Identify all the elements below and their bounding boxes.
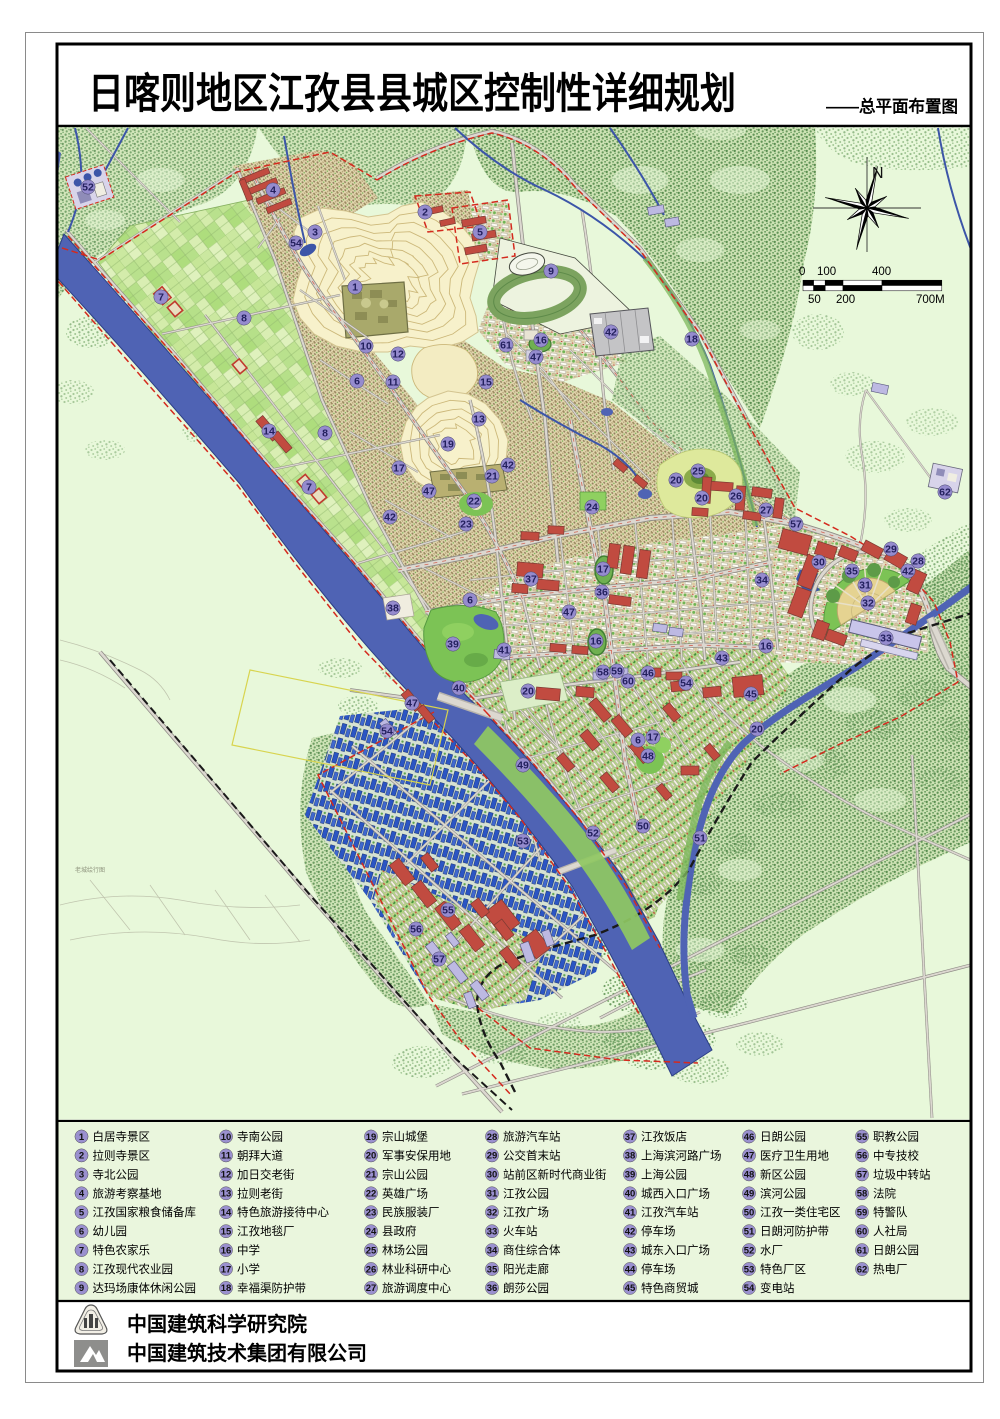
svg-text:19: 19: [366, 1132, 377, 1143]
svg-text:23: 23: [366, 1208, 377, 1219]
svg-text:10: 10: [221, 1132, 232, 1143]
svg-text:48: 48: [642, 751, 654, 763]
svg-text:4: 4: [270, 185, 276, 197]
svg-text:江孜一类住宅区: 江孜一类住宅区: [760, 1205, 841, 1219]
svg-text:县政府: 县政府: [382, 1224, 417, 1238]
svg-text:旅游调度中心: 旅游调度中心: [382, 1281, 451, 1295]
svg-text:35: 35: [846, 566, 858, 578]
svg-text:16: 16: [221, 1245, 232, 1256]
svg-text:57: 57: [857, 1170, 868, 1181]
svg-text:53: 53: [517, 836, 529, 848]
svg-text:30: 30: [813, 557, 825, 569]
svg-text:26: 26: [366, 1264, 377, 1275]
svg-text:42: 42: [605, 327, 617, 339]
svg-text:13: 13: [473, 414, 485, 426]
svg-text:46: 46: [642, 668, 654, 680]
svg-text:31: 31: [859, 580, 871, 592]
svg-text:24: 24: [586, 502, 598, 514]
svg-text:39: 39: [625, 1170, 636, 1181]
svg-text:2: 2: [79, 1151, 84, 1162]
svg-text:44: 44: [625, 1264, 636, 1275]
svg-text:700M: 700M: [916, 294, 945, 306]
svg-text:53: 53: [744, 1264, 755, 1275]
svg-text:6: 6: [354, 376, 360, 388]
svg-text:62: 62: [857, 1264, 868, 1275]
svg-text:18: 18: [686, 334, 698, 346]
svg-text:39: 39: [447, 639, 459, 651]
svg-text:20: 20: [696, 493, 708, 505]
svg-text:14: 14: [263, 426, 275, 438]
svg-text:3: 3: [312, 227, 318, 239]
svg-text:8: 8: [322, 428, 328, 440]
svg-text:50: 50: [637, 821, 649, 833]
svg-text:20: 20: [751, 724, 763, 736]
svg-text:老城绘行图: 老城绘行图: [75, 866, 105, 874]
svg-text:25: 25: [692, 466, 704, 478]
svg-text:47: 47: [744, 1151, 755, 1162]
svg-text:特色旅游接待中心: 特色旅游接待中心: [237, 1205, 329, 1219]
svg-text:34: 34: [756, 575, 768, 587]
svg-text:33: 33: [880, 633, 892, 645]
svg-text:6: 6: [467, 595, 473, 607]
svg-text:45: 45: [745, 689, 757, 701]
svg-text:48: 48: [744, 1170, 755, 1181]
svg-text:36: 36: [487, 1283, 498, 1294]
svg-text:垃圾中转站: 垃圾中转站: [873, 1167, 931, 1181]
svg-text:特色厂区: 特色厂区: [760, 1262, 806, 1276]
svg-text:日喀则地区江孜县县城区控制性详细规划: 日喀则地区江孜县县城区控制性详细规划: [88, 70, 736, 117]
svg-text:江孜现代农业园: 江孜现代农业园: [93, 1262, 174, 1276]
svg-text:站前区新时代商业街: 站前区新时代商业街: [503, 1167, 607, 1181]
svg-text:28: 28: [487, 1132, 498, 1143]
svg-text:25: 25: [366, 1245, 377, 1256]
svg-text:43: 43: [625, 1245, 636, 1256]
svg-text:30: 30: [487, 1170, 498, 1181]
svg-text:9: 9: [548, 266, 554, 278]
svg-text:江孜国家粮食储备库: 江孜国家粮食储备库: [93, 1205, 197, 1219]
svg-text:100: 100: [817, 266, 836, 278]
svg-text:47: 47: [563, 607, 575, 619]
svg-text:达玛场康体休闲公园: 达玛场康体休闲公园: [93, 1281, 197, 1295]
svg-text:37: 37: [625, 1132, 636, 1143]
svg-text:47: 47: [530, 352, 542, 364]
svg-text:400: 400: [872, 266, 891, 278]
svg-text:61: 61: [857, 1245, 868, 1256]
svg-text:54: 54: [744, 1283, 755, 1294]
svg-text:江孜公园: 江孜公园: [503, 1186, 549, 1200]
svg-text:40: 40: [625, 1189, 636, 1200]
svg-text:法院: 法院: [873, 1186, 896, 1200]
svg-text:林业科研中心: 林业科研中心: [382, 1262, 451, 1276]
svg-text:50: 50: [808, 294, 821, 306]
svg-text:变电站: 变电站: [760, 1281, 795, 1295]
svg-text:阳光走廊: 阳光走廊: [503, 1262, 549, 1276]
svg-text:29: 29: [487, 1151, 498, 1162]
svg-text:49: 49: [744, 1189, 755, 1200]
svg-text:17: 17: [597, 564, 609, 576]
svg-text:17: 17: [221, 1264, 232, 1275]
svg-text:5: 5: [477, 227, 483, 239]
svg-text:38: 38: [387, 603, 399, 615]
svg-text:6: 6: [635, 735, 641, 747]
svg-text:32: 32: [487, 1208, 498, 1219]
svg-text:13: 13: [221, 1189, 232, 1200]
svg-text:24: 24: [366, 1227, 377, 1238]
svg-text:23: 23: [460, 519, 472, 531]
svg-text:51: 51: [694, 833, 706, 845]
svg-text:51: 51: [744, 1227, 755, 1238]
svg-text:英雄广场: 英雄广场: [382, 1186, 428, 1200]
svg-text:42: 42: [502, 460, 514, 472]
svg-text:8: 8: [241, 313, 247, 325]
svg-text:12: 12: [392, 349, 404, 361]
svg-text:商住综合体: 商住综合体: [503, 1243, 561, 1257]
svg-text:——总平面布置图: ——总平面布置图: [826, 96, 958, 116]
svg-text:56: 56: [410, 924, 422, 936]
svg-text:56: 56: [857, 1151, 868, 1162]
svg-text:江孜饭店: 江孜饭店: [641, 1130, 687, 1144]
svg-text:朗莎公园: 朗莎公园: [503, 1281, 549, 1295]
svg-text:10: 10: [360, 341, 372, 353]
svg-text:52: 52: [82, 182, 94, 194]
svg-text:14: 14: [221, 1208, 232, 1219]
svg-text:寺南公园: 寺南公园: [237, 1130, 283, 1144]
svg-text:民族服装厂: 民族服装厂: [382, 1205, 440, 1219]
svg-text:31: 31: [487, 1189, 498, 1200]
svg-text:停车场: 停车场: [641, 1224, 676, 1238]
svg-text:宗山公园: 宗山公园: [382, 1167, 428, 1181]
svg-text:热电厂: 热电厂: [873, 1263, 908, 1276]
svg-text:60: 60: [622, 676, 634, 688]
svg-text:拉则寺景区: 拉则寺景区: [93, 1148, 151, 1162]
svg-text:城西入口广场: 城西入口广场: [641, 1186, 710, 1200]
svg-text:幼儿园: 幼儿园: [93, 1225, 128, 1238]
svg-text:停车场: 停车场: [641, 1262, 676, 1276]
svg-text:22: 22: [366, 1189, 377, 1200]
svg-text:5: 5: [79, 1208, 85, 1219]
svg-text:中学: 中学: [237, 1243, 260, 1257]
svg-text:江孜汽车站: 江孜汽车站: [641, 1205, 699, 1219]
svg-text:54: 54: [381, 726, 393, 738]
svg-text:朝拜大道: 朝拜大道: [237, 1148, 283, 1162]
svg-text:职教公园: 职教公园: [873, 1130, 919, 1144]
svg-text:52: 52: [744, 1245, 755, 1256]
svg-text:林场公园: 林场公园: [382, 1243, 428, 1257]
svg-text:旅游考察基地: 旅游考察基地: [93, 1186, 162, 1200]
svg-text:7: 7: [158, 292, 164, 304]
svg-text:47: 47: [423, 486, 435, 498]
svg-text:水厂: 水厂: [760, 1244, 783, 1257]
svg-text:幸福渠防护带: 幸福渠防护带: [237, 1281, 306, 1295]
svg-text:28: 28: [912, 556, 924, 568]
svg-text:日朗公园: 日朗公园: [760, 1131, 806, 1144]
svg-text:21: 21: [486, 471, 498, 483]
svg-text:公交首末站: 公交首末站: [503, 1148, 561, 1162]
svg-text:1: 1: [79, 1132, 85, 1143]
svg-text:61: 61: [500, 340, 512, 352]
svg-text:18: 18: [221, 1283, 232, 1294]
svg-text:52: 52: [587, 828, 599, 840]
svg-text:32: 32: [862, 598, 874, 610]
svg-text:中专技校: 中专技校: [873, 1148, 919, 1162]
svg-text:20: 20: [522, 686, 534, 698]
svg-text:中国建筑技术集团有限公司: 中国建筑技术集团有限公司: [127, 1341, 367, 1365]
svg-text:57: 57: [790, 519, 802, 531]
svg-text:41: 41: [498, 645, 510, 657]
svg-text:9: 9: [79, 1283, 84, 1294]
svg-text:宗山城堡: 宗山城堡: [382, 1130, 428, 1144]
svg-text:江孜广场: 江孜广场: [503, 1205, 549, 1219]
svg-text:特警队: 特警队: [873, 1205, 908, 1219]
svg-text:29: 29: [885, 544, 897, 556]
svg-text:17: 17: [647, 732, 659, 744]
svg-text:特色农家乐: 特色农家乐: [93, 1243, 151, 1257]
svg-text:16: 16: [590, 636, 602, 648]
svg-text:7: 7: [79, 1245, 84, 1256]
svg-text:城东入口广场: 城东入口广场: [641, 1243, 710, 1257]
svg-text:54: 54: [680, 678, 692, 690]
svg-text:55: 55: [442, 905, 454, 917]
svg-text:军事安保用地: 军事安保用地: [382, 1148, 451, 1162]
svg-text:50: 50: [744, 1208, 755, 1219]
svg-text:16: 16: [760, 641, 772, 653]
svg-text:6: 6: [79, 1227, 84, 1238]
svg-text:27: 27: [760, 505, 772, 517]
svg-text:火车站: 火车站: [503, 1224, 538, 1238]
svg-text:42: 42: [384, 512, 396, 524]
svg-text:57: 57: [433, 954, 445, 966]
svg-text:42: 42: [902, 566, 914, 578]
svg-text:54: 54: [290, 238, 302, 250]
svg-text:3: 3: [79, 1170, 84, 1181]
svg-text:26: 26: [730, 491, 742, 503]
svg-text:200: 200: [836, 294, 855, 306]
svg-text:19: 19: [442, 439, 454, 451]
svg-text:上海滨河路广场: 上海滨河路广场: [641, 1148, 722, 1162]
svg-text:58: 58: [597, 667, 609, 679]
svg-text:22: 22: [468, 496, 480, 508]
svg-text:55: 55: [857, 1132, 868, 1143]
svg-text:2: 2: [422, 207, 428, 219]
svg-text:33: 33: [487, 1227, 498, 1238]
svg-text:17: 17: [393, 463, 405, 475]
svg-text:35: 35: [487, 1264, 498, 1275]
svg-text:医疗卫生用地: 医疗卫生用地: [760, 1148, 829, 1162]
svg-text:43: 43: [716, 653, 728, 665]
svg-text:20: 20: [366, 1151, 377, 1162]
svg-text:上海公园: 上海公园: [641, 1167, 687, 1181]
svg-text:45: 45: [625, 1283, 636, 1294]
svg-text:20: 20: [670, 475, 682, 487]
svg-text:0: 0: [799, 266, 805, 278]
svg-text:11: 11: [387, 377, 398, 389]
svg-text:37: 37: [525, 574, 537, 586]
svg-text:16: 16: [535, 335, 547, 347]
svg-text:59: 59: [611, 666, 623, 678]
svg-text:62: 62: [939, 487, 951, 499]
svg-text:日朗公园: 日朗公园: [873, 1244, 919, 1257]
svg-text:拉则老街: 拉则老街: [237, 1186, 283, 1200]
svg-text:1: 1: [352, 282, 358, 294]
svg-text:N: N: [872, 165, 884, 182]
svg-text:11: 11: [221, 1151, 232, 1162]
svg-text:60: 60: [857, 1227, 868, 1238]
svg-text:特色商贸城: 特色商贸城: [641, 1281, 699, 1295]
svg-text:江孜地毯厂: 江孜地毯厂: [237, 1224, 295, 1238]
svg-text:12: 12: [221, 1170, 232, 1181]
svg-text:日朗河防护带: 日朗河防护带: [760, 1224, 829, 1238]
svg-text:7: 7: [306, 482, 312, 494]
svg-text:4: 4: [79, 1189, 85, 1200]
svg-text:47: 47: [406, 698, 418, 710]
svg-text:人社局: 人社局: [873, 1224, 908, 1238]
svg-text:8: 8: [79, 1264, 84, 1275]
svg-text:滨河公园: 滨河公园: [760, 1186, 806, 1200]
svg-text:40: 40: [453, 683, 465, 695]
svg-text:59: 59: [857, 1208, 868, 1219]
svg-text:旅游汽车站: 旅游汽车站: [503, 1130, 561, 1144]
svg-text:加日交老街: 加日交老街: [237, 1167, 295, 1181]
svg-text:38: 38: [625, 1151, 636, 1162]
svg-text:36: 36: [596, 587, 608, 599]
svg-text:15: 15: [480, 377, 492, 389]
svg-text:寺北公园: 寺北公园: [93, 1168, 139, 1181]
svg-text:49: 49: [517, 760, 529, 772]
svg-text:46: 46: [744, 1132, 755, 1143]
svg-text:小学: 小学: [237, 1262, 260, 1276]
svg-text:新区公园: 新区公园: [760, 1167, 806, 1181]
svg-text:41: 41: [625, 1208, 636, 1219]
svg-text:15: 15: [221, 1227, 232, 1238]
svg-text:21: 21: [366, 1170, 377, 1181]
svg-text:42: 42: [625, 1227, 636, 1238]
svg-text:58: 58: [857, 1189, 868, 1200]
svg-text:34: 34: [487, 1245, 498, 1256]
svg-text:中国建筑科学研究院: 中国建筑科学研究院: [127, 1312, 307, 1336]
svg-text:27: 27: [366, 1283, 377, 1294]
svg-text:白居寺景区: 白居寺景区: [93, 1130, 151, 1144]
